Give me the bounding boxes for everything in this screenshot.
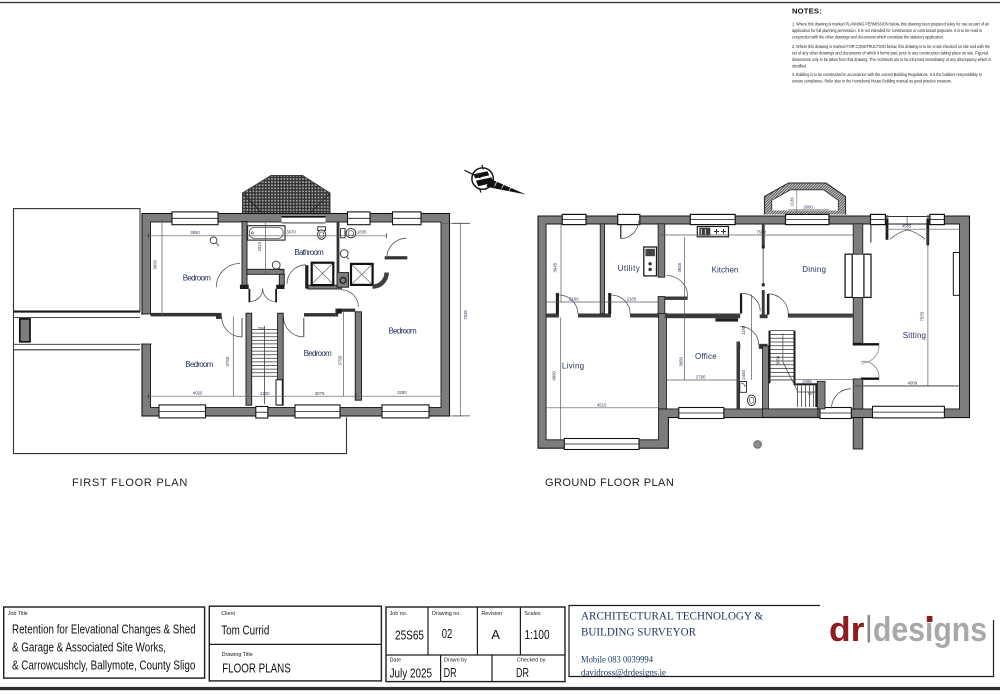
svg-text:FLOOR PLANS: FLOOR PLANS bbox=[222, 662, 291, 676]
svg-text:A: A bbox=[491, 628, 500, 642]
svg-text:ensure compliance. Refer also: ensure compliance. Refer also to the Hom… bbox=[792, 78, 952, 83]
svg-text:& Garage & Associated Site Wor: & Garage & Associated Site Works, bbox=[12, 640, 166, 654]
svg-text:Drawing Title: Drawing Title bbox=[222, 652, 253, 658]
svg-text:Dining: Dining bbox=[802, 265, 826, 274]
svg-text:Date: Date bbox=[390, 658, 401, 664]
svg-text:3. Building is to be construct: 3. Building is to be constructed in acco… bbox=[792, 72, 983, 77]
svg-text:1190: 1190 bbox=[741, 325, 746, 335]
svg-text:Drawing no.: Drawing no. bbox=[432, 611, 461, 617]
svg-text:3075: 3075 bbox=[315, 391, 325, 396]
svg-text:conjunction with the other dra: conjunction with the other drawings and … bbox=[792, 35, 944, 40]
svg-text:Tom Currid: Tom Currid bbox=[221, 623, 269, 637]
svg-text:1:100: 1:100 bbox=[525, 628, 550, 642]
svg-text:3750: 3750 bbox=[337, 355, 342, 365]
svg-text:Office: Office bbox=[695, 352, 717, 361]
svg-text:3050: 3050 bbox=[678, 357, 683, 367]
svg-text:Retention for Elevational Chan: Retention for Elevational Changes & Shed bbox=[12, 622, 196, 636]
svg-text:Utility: Utility bbox=[618, 264, 640, 273]
svg-text:2160: 2160 bbox=[569, 296, 579, 301]
svg-text:Kitchen: Kitchen bbox=[712, 265, 739, 274]
svg-text:Living: Living bbox=[562, 361, 584, 370]
svg-text:DN: DN bbox=[258, 326, 264, 331]
svg-text:identified.: identified. bbox=[792, 64, 807, 69]
svg-text:25S65: 25S65 bbox=[395, 629, 424, 643]
svg-text:Bedroom: Bedroom bbox=[389, 327, 418, 336]
svg-text:3750: 3750 bbox=[225, 356, 230, 366]
svg-text:3670: 3670 bbox=[286, 230, 296, 235]
svg-text:Scales: Scales bbox=[524, 611, 540, 617]
svg-text:Bathroom: Bathroom bbox=[294, 248, 324, 257]
svg-text:3645: 3645 bbox=[677, 262, 682, 272]
svg-text:2600: 2600 bbox=[803, 204, 813, 209]
svg-text:Job no.: Job no. bbox=[390, 611, 408, 617]
svg-text:2. Where this drawing is mark: 2. Where this drawing is marked FOR CONS… bbox=[792, 44, 991, 49]
svg-text:7535: 7535 bbox=[463, 310, 468, 320]
svg-text:FIRST FLOOR PLAN: FIRST FLOOR PLAN bbox=[72, 477, 189, 489]
svg-text:July 2025: July 2025 bbox=[390, 667, 432, 681]
svg-text:4000: 4000 bbox=[908, 380, 918, 385]
svg-text:ARCHITECTURAL TECHNOLOGY &: ARCHITECTURAL TECHNOLOGY & bbox=[581, 611, 763, 623]
svg-text:GROUND FLOOR PLAN: GROUND FLOOR PLAN bbox=[545, 477, 676, 489]
svg-text:3495: 3495 bbox=[802, 379, 812, 384]
svg-text:3645: 3645 bbox=[552, 262, 557, 272]
svg-text:Checked by: Checked by bbox=[517, 658, 546, 664]
svg-text:7535: 7535 bbox=[919, 311, 924, 321]
svg-text:1915: 1915 bbox=[257, 241, 262, 251]
svg-text:2185: 2185 bbox=[627, 296, 637, 301]
svg-text:DR: DR bbox=[444, 666, 457, 680]
svg-text:dimensions only to be taken fr: dimensions only to be taken from this dr… bbox=[792, 57, 991, 62]
svg-text:dr: dr bbox=[829, 611, 865, 649]
svg-text:4515: 4515 bbox=[597, 402, 607, 407]
svg-text:Bedroom: Bedroom bbox=[185, 360, 214, 369]
svg-text:davidross@drdesigns.ie: davidross@drdesigns.ie bbox=[581, 668, 666, 678]
svg-text:BUILDING SURVEYOR: BUILDING SURVEYOR bbox=[581, 627, 696, 639]
svg-text:1200: 1200 bbox=[260, 391, 270, 396]
svg-text:Mobile 083 0039994: Mobile 083 0039994 bbox=[581, 655, 653, 665]
svg-text:02: 02 bbox=[442, 627, 453, 641]
svg-text:Sitting: Sitting bbox=[903, 331, 926, 340]
svg-text:Client: Client bbox=[221, 611, 235, 617]
svg-text:DR: DR bbox=[516, 666, 529, 680]
svg-text:1136: 1136 bbox=[790, 197, 795, 207]
svg-text:3850: 3850 bbox=[190, 230, 200, 235]
svg-text:Drawn by: Drawn by bbox=[444, 658, 467, 664]
svg-text:Bedroom: Bedroom bbox=[304, 349, 333, 358]
svg-text:2790: 2790 bbox=[696, 374, 706, 379]
svg-text:set of any other drawings and: set of any other drawings and documents … bbox=[792, 51, 989, 56]
svg-text:2440: 2440 bbox=[741, 370, 746, 380]
svg-text:3280: 3280 bbox=[397, 390, 407, 395]
svg-text:4890: 4890 bbox=[552, 371, 557, 381]
svg-text:& Carrowcushcly, Ballymote, Co: & Carrowcushcly, Ballymote, County Sligo bbox=[12, 659, 195, 673]
svg-text:UP: UP bbox=[808, 391, 814, 396]
svg-text:1835: 1835 bbox=[357, 230, 367, 235]
svg-text:4555: 4555 bbox=[902, 224, 912, 229]
svg-text:Bedroom: Bedroom bbox=[183, 273, 212, 282]
svg-text:3050: 3050 bbox=[775, 355, 780, 365]
svg-text:Revision: Revision bbox=[481, 611, 502, 617]
svg-text:4025: 4025 bbox=[193, 391, 203, 396]
svg-text:7500: 7500 bbox=[756, 229, 766, 234]
svg-text:NOTES:: NOTES: bbox=[792, 7, 822, 16]
svg-text:3695: 3695 bbox=[153, 260, 158, 270]
svg-text:1. Where this drawing is marke: 1. Where this drawing is marked PLANNING… bbox=[792, 22, 990, 27]
svg-text:application for full planning: application for full planning permission… bbox=[792, 28, 983, 33]
svg-text:Job Title: Job Title bbox=[8, 611, 28, 617]
